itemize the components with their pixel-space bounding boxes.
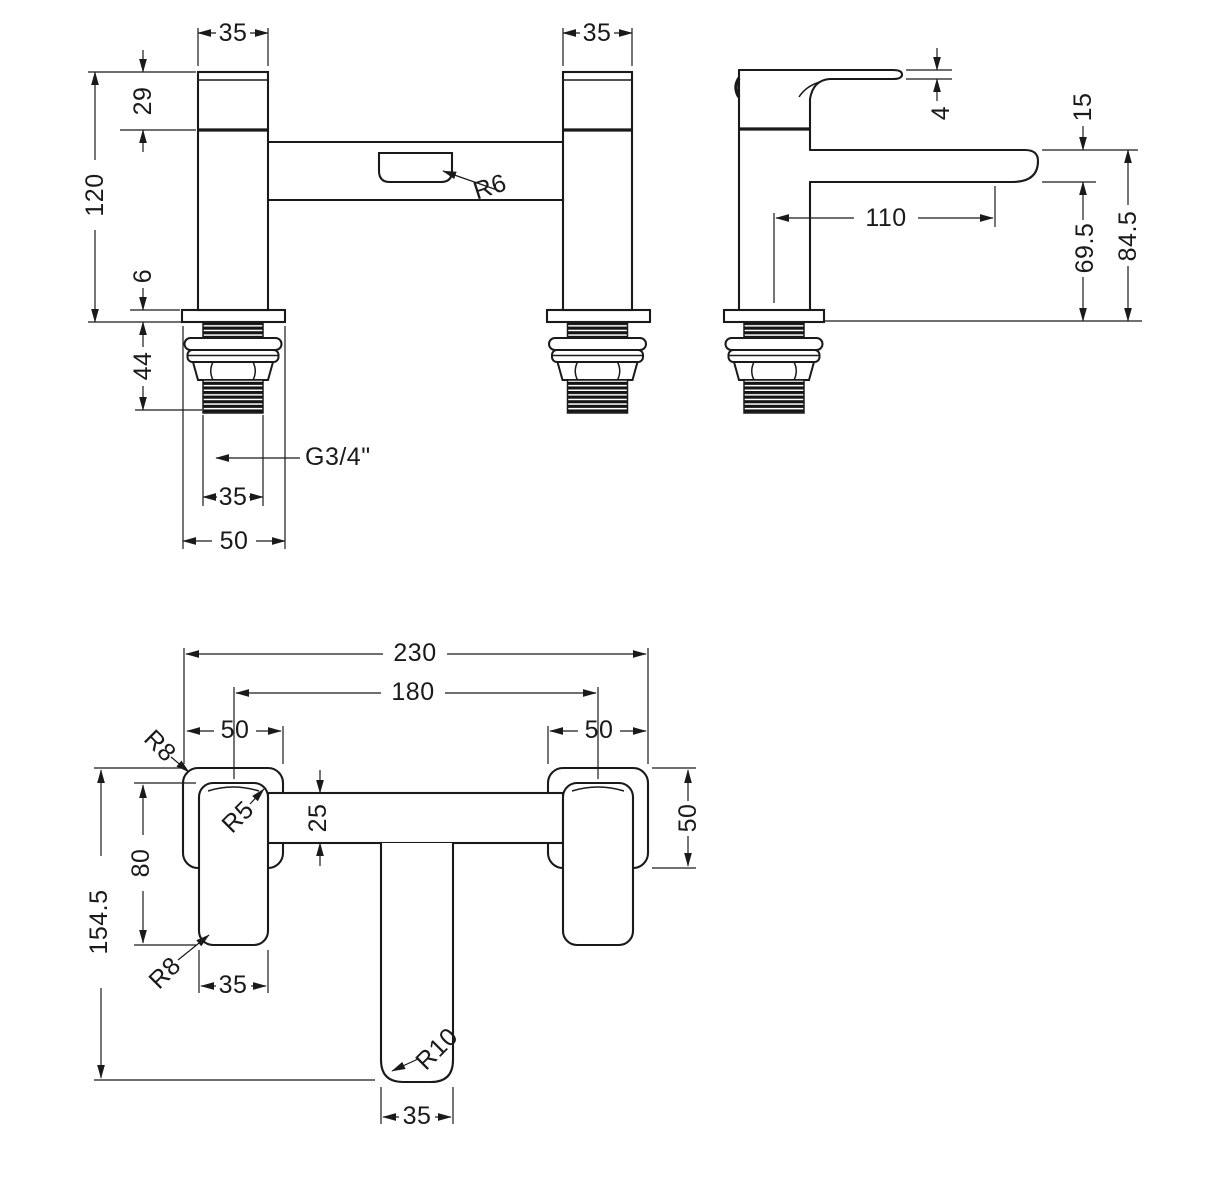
- dim-front-flange-thickness: 6: [129, 269, 157, 283]
- dim-plan-flange-width-left: 50: [221, 716, 250, 744]
- dim-front-thread-width: 35: [219, 483, 248, 511]
- front-view: 35 35 29 120 6 44: [81, 19, 650, 555]
- bath-filler-dimension-drawing: 35 35 29 120 6 44: [0, 0, 1214, 1179]
- dim-front-body-height: 120: [81, 173, 109, 216]
- dim-plan-flange-width-right: 50: [585, 716, 614, 744]
- side-spout: [810, 150, 1038, 182]
- dim-plan-handle-width: 35: [219, 971, 248, 999]
- dim-plan-overall-depth: 154.5: [85, 889, 113, 954]
- label-thread-spec: G3/4": [305, 443, 371, 471]
- side-flange: [724, 310, 824, 322]
- dim-side-spout-height: 15: [1069, 93, 1097, 122]
- side-lever-handle: [739, 70, 902, 150]
- front-right-threaded-tail: [549, 322, 646, 413]
- dim-side-handle-thickness: 4: [927, 106, 955, 120]
- plan-view: 230 180 50 50 50 25: [85, 639, 702, 1130]
- dim-front-width-left: 35: [219, 19, 248, 47]
- front-left-flange: [182, 310, 285, 322]
- front-dimensions: 35 35 29 120 6 44: [81, 19, 632, 555]
- front-right-column: [563, 72, 632, 310]
- side-view: 4 15 110 69.5 84.5: [724, 48, 1142, 413]
- dim-front-handle-height: 29: [129, 87, 157, 116]
- side-threaded-tail: [726, 322, 823, 413]
- front-spout-slot: [379, 153, 452, 182]
- dim-front-tail-length: 44: [129, 352, 157, 381]
- dim-side-overall-height: 84.5: [1114, 211, 1142, 262]
- side-dimensions: 4 15 110 69.5 84.5: [774, 48, 1142, 321]
- dim-front-flange-width: 50: [220, 527, 249, 555]
- plan-right-handle: [563, 783, 633, 945]
- front-right-flange: [547, 310, 650, 322]
- dim-plan-handle-length: 80: [127, 849, 155, 878]
- dim-plan-flange-depth: 50: [674, 804, 702, 833]
- front-tap-body: [182, 72, 650, 413]
- dim-side-spout-to-deck: 69.5: [1071, 223, 1099, 274]
- technical-drawing-page: 35 35 29 120 6 44: [0, 0, 1214, 1179]
- dim-plan-crossbar-width: 25: [304, 804, 332, 833]
- dim-plan-spout-width: 35: [403, 1102, 432, 1130]
- front-left-threaded-tail: [185, 322, 282, 413]
- front-left-column: [198, 72, 268, 310]
- dim-plan-overall-width: 230: [393, 639, 436, 667]
- dim-plan-hole-centres: 180: [391, 678, 434, 706]
- dim-front-width-right: 35: [583, 19, 612, 47]
- dim-side-spout-reach: 110: [865, 204, 906, 232]
